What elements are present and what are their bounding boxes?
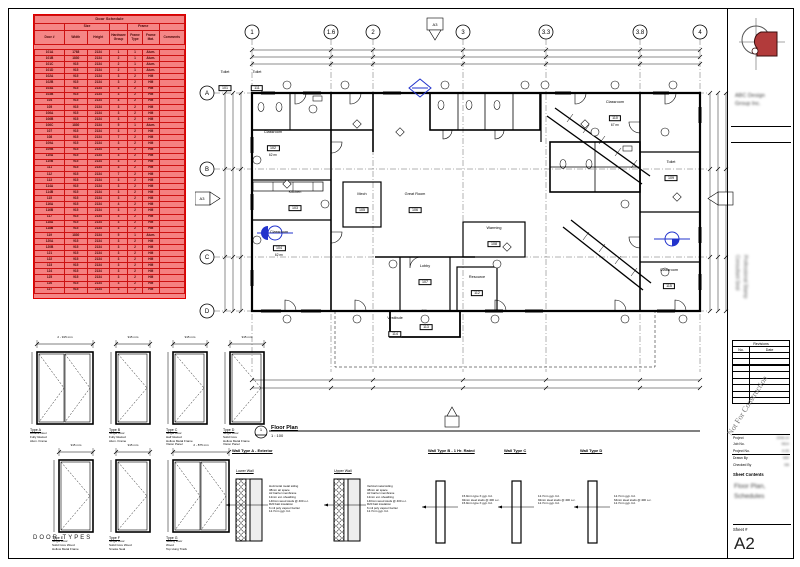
view-title: 1 Floor Plan 1 : 100 (255, 425, 700, 438)
sheet-number-label: Sheet # (733, 524, 791, 532)
svg-text:D: D (205, 309, 210, 315)
grid-bubbles: 11.6233.33.84ABCD (200, 25, 707, 318)
wall-type: Wall Type C12.7mm gyp. bd.92mm steel stu… (504, 448, 575, 547)
group-frame: Frame (128, 24, 160, 31)
door-type: 915 mmType FSingle DoorSolid Core WoodSm… (109, 444, 157, 551)
door-type: 2 - 875 mmType GSliding DoorWoodTop Hung… (166, 444, 236, 551)
group-size: Size (65, 24, 110, 31)
door-schedule-table[interactable]: Door Schedule Size Frame Door #WidthHeig… (33, 14, 186, 299)
schedule-column-header: Width (65, 31, 88, 45)
windows (251, 92, 702, 313)
svg-text:A3: A3 (200, 196, 206, 201)
svg-text:3.3: 3.3 (542, 30, 551, 36)
wall-type-part: Lower WallHorizontal metal siding38mm ai… (232, 469, 309, 546)
schedule-row: 127915213432HM (35, 287, 185, 293)
project-fields: Project2006-14Job No.0614Project No.A-06… (732, 434, 790, 468)
door-type: 915 mmType CSingle DoorHalf GlazedHollow… (166, 336, 214, 447)
project-field: Drawn ByMW (732, 454, 790, 461)
door-type: 915 mmType DSingle DoorSolid CoreHollow … (223, 336, 271, 447)
wall-type: Wall Type B - 1 Hr. Rated15.9mm type X g… (428, 448, 499, 547)
svg-text:1.6: 1.6 (327, 30, 336, 36)
consultant-stamp: Professional Stamp Consultant Seal (733, 255, 749, 298)
project-field: Checked ByDB (732, 462, 790, 468)
view-title-name: Floor Plan (271, 425, 299, 431)
floor-plan-viewport[interactable]: A3 A3 11.6233.33.84ABCD 1 Floor Plan 1 :… (195, 12, 735, 445)
firm-logo (739, 18, 785, 70)
schedule-column-header: Height (87, 31, 110, 45)
dimension-lines (225, 50, 726, 388)
stair-diagonals (547, 108, 651, 290)
revision-row (733, 397, 790, 403)
walls (252, 93, 700, 367)
schedule-column-header: Door # (35, 31, 65, 45)
sheet-contents-label: Sheet Contents (733, 472, 764, 477)
schedule-column-header: Hardware Group (110, 31, 128, 45)
wall-type: Wall Type D12.7mm gyp. bd.64mm steel stu… (580, 448, 651, 547)
svg-text:3.8: 3.8 (636, 30, 645, 36)
svg-text:A: A (205, 91, 209, 97)
sheet-number: A2 (734, 534, 755, 554)
door-tags (253, 81, 687, 323)
wall-types-legend: Wall Type A - Exterior Lower WallHorizon… (232, 448, 652, 553)
svg-text:A3: A3 (433, 22, 439, 27)
svg-text:B: B (205, 167, 209, 173)
schedule-title: Door Schedule (35, 16, 185, 24)
title-block: ABC Design Group Inc. Professional Stamp… (727, 8, 793, 559)
door-type: 2 - 915 mmType ADouble DoorFully GlazedA… (30, 336, 100, 443)
sheet-contents: Floor Plan, Schedules (734, 482, 765, 502)
wall-type-a: Wall Type A - Exterior Lower WallHorizon… (232, 448, 422, 549)
revision-row (733, 359, 790, 365)
door-types-legend: 2 - 915 mmType ADouble DoorFully GlazedA… (30, 332, 245, 554)
view-title-scale: 1 : 100 (271, 433, 284, 438)
detail-callouts[interactable] (257, 79, 690, 246)
schedule-column-header: Frame Type (128, 31, 143, 45)
schedule-column-header: Comments (159, 31, 185, 45)
drawing-sheet: Door Schedule Size Frame Door #WidthHeig… (0, 0, 800, 567)
dimension-ticks (223, 48, 728, 390)
door-types-caption: DOOR TYPES (33, 535, 92, 541)
schedule-column-header: Frame Mat. (143, 31, 160, 45)
floor-plan-drawing: A3 A3 11.6233.33.84ABCD 1 Floor Plan 1 :… (195, 12, 735, 445)
firm-name: ABC Design Group Inc. (735, 92, 765, 109)
wall-type-part: Upper WallVertical metal siding38mm air … (330, 469, 407, 546)
door-type: 915 mmType BSingle DoorFully GlazedAlum.… (109, 336, 157, 443)
svg-text:C: C (205, 255, 210, 261)
revisions-table: Revisions No. Date (732, 340, 790, 365)
